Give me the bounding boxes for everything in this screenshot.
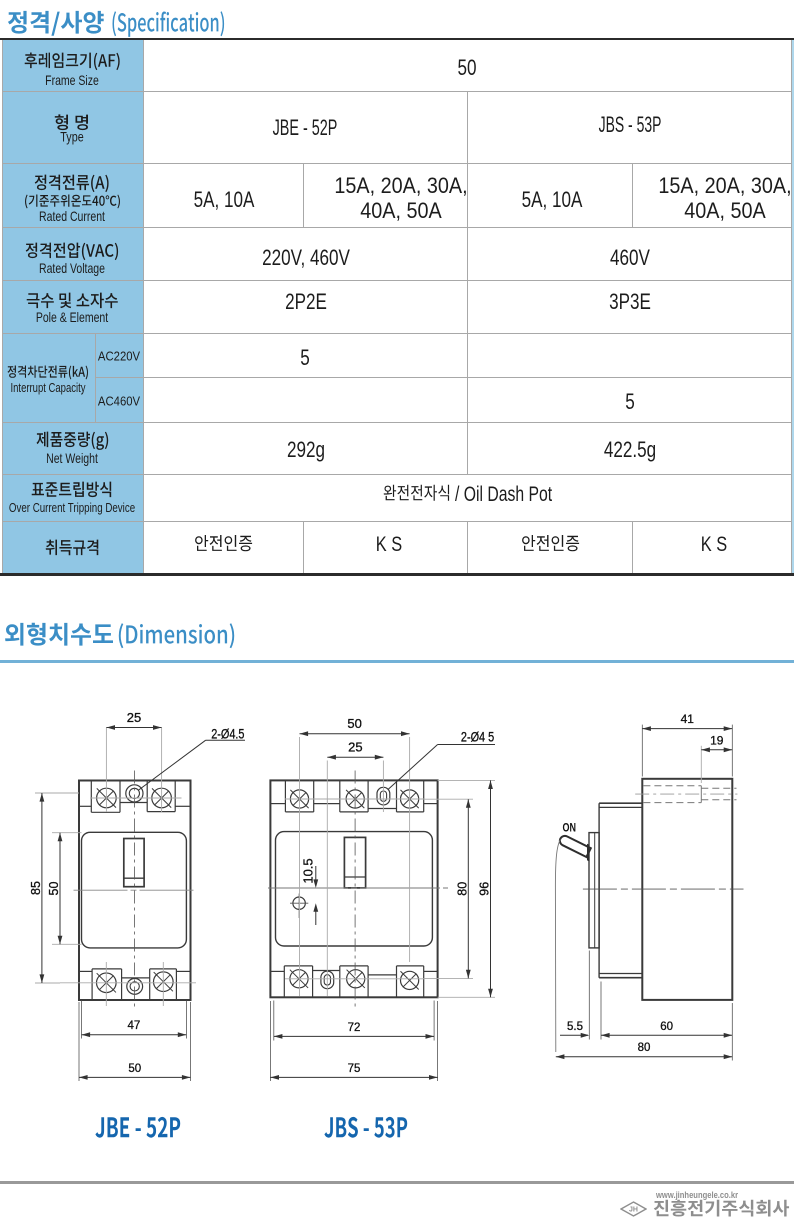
svg-text:25: 25 xyxy=(127,710,141,725)
svg-text:50: 50 xyxy=(47,882,61,896)
svg-text:85: 85 xyxy=(29,881,43,895)
svg-text:5.5: 5.5 xyxy=(567,1021,583,1033)
svg-text:ON: ON xyxy=(563,823,577,835)
svg-text:75: 75 xyxy=(348,1063,361,1075)
svg-text:10.5: 10.5 xyxy=(301,858,316,883)
svg-text:96: 96 xyxy=(478,882,492,896)
svg-text:JH: JH xyxy=(629,1207,638,1214)
svg-text:19: 19 xyxy=(710,733,724,747)
svg-text:25: 25 xyxy=(348,740,362,755)
svg-text:50: 50 xyxy=(347,716,361,731)
svg-text:50: 50 xyxy=(128,1063,141,1075)
svg-text:80: 80 xyxy=(638,1042,651,1054)
svg-text:80: 80 xyxy=(455,882,469,896)
svg-text:60: 60 xyxy=(660,1021,673,1033)
svg-text:41: 41 xyxy=(681,712,695,726)
svg-text:2-Ø4.5: 2-Ø4.5 xyxy=(211,726,244,741)
svg-text:47: 47 xyxy=(128,1020,141,1032)
svg-text:72: 72 xyxy=(348,1022,361,1034)
svg-text:2-Ø4 5: 2-Ø4 5 xyxy=(461,730,494,745)
